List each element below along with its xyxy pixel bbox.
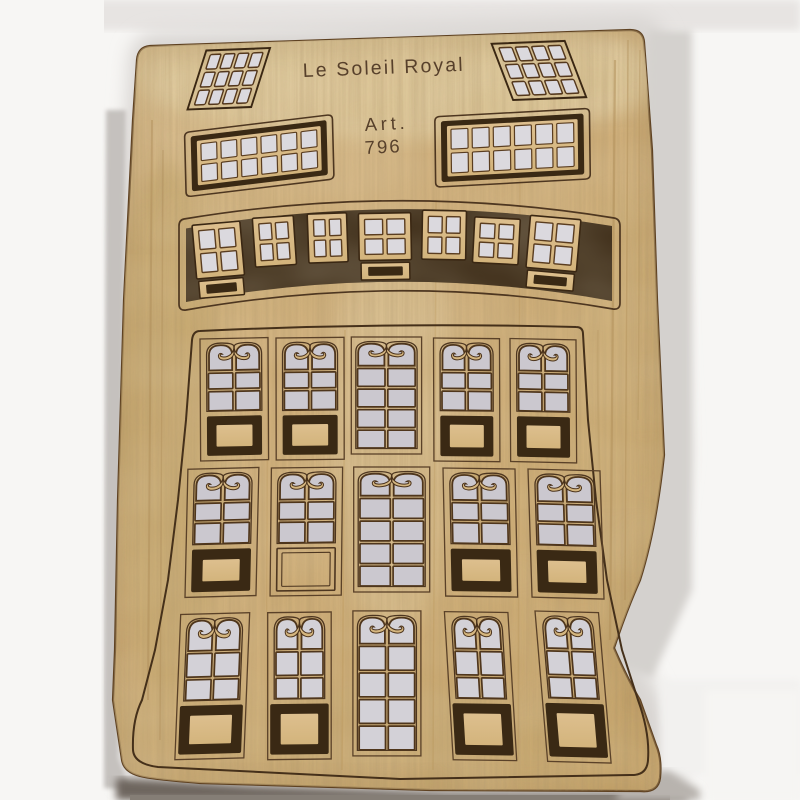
svg-text:Art.: Art.	[364, 112, 405, 135]
svg-text:796: 796	[364, 135, 400, 158]
